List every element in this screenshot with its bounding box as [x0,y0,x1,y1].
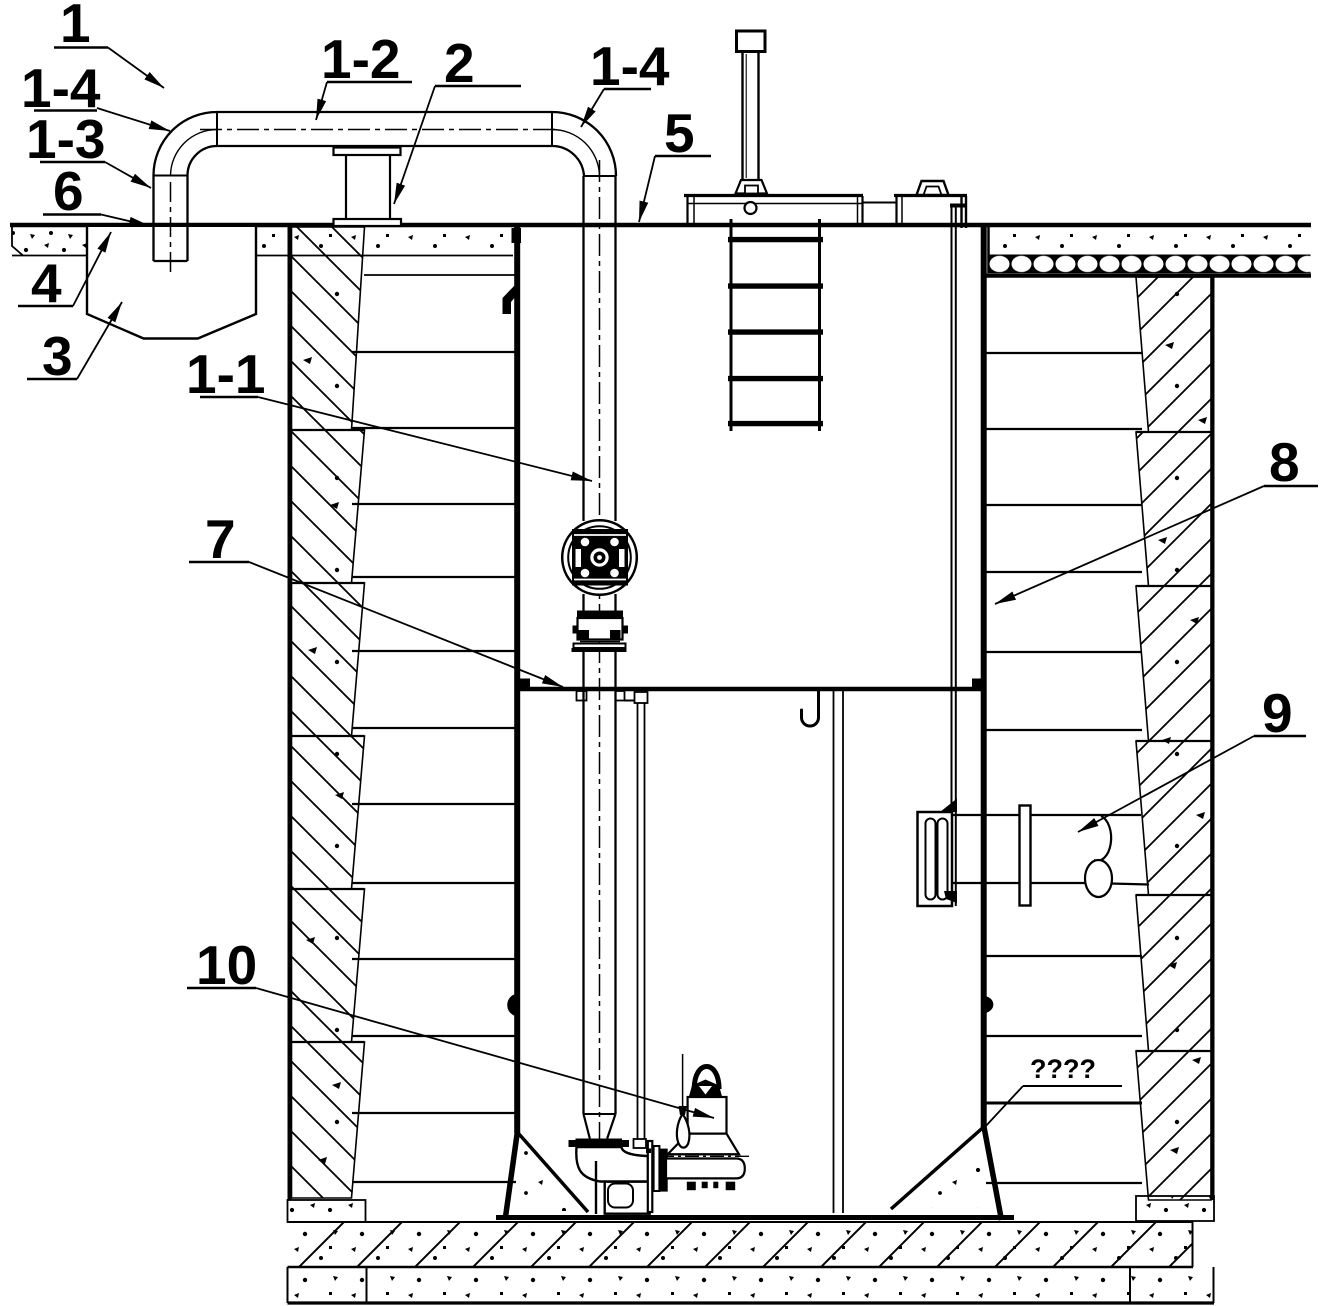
svg-text:1: 1 [60,0,91,54]
svg-text:????: ???? [1030,1054,1096,1084]
svg-text:6: 6 [53,160,84,222]
svg-text:8: 8 [1269,431,1300,493]
svg-text:2: 2 [444,32,475,94]
svg-text:9: 9 [1262,682,1293,744]
svg-text:1-1: 1-1 [186,343,266,405]
svg-text:1-4: 1-4 [590,35,670,97]
svg-text:1-2: 1-2 [321,28,401,90]
svg-text:3: 3 [42,325,73,387]
svg-text:5: 5 [664,102,695,164]
svg-text:10: 10 [196,934,257,996]
svg-text:7: 7 [205,508,236,570]
svg-text:4: 4 [31,252,62,314]
